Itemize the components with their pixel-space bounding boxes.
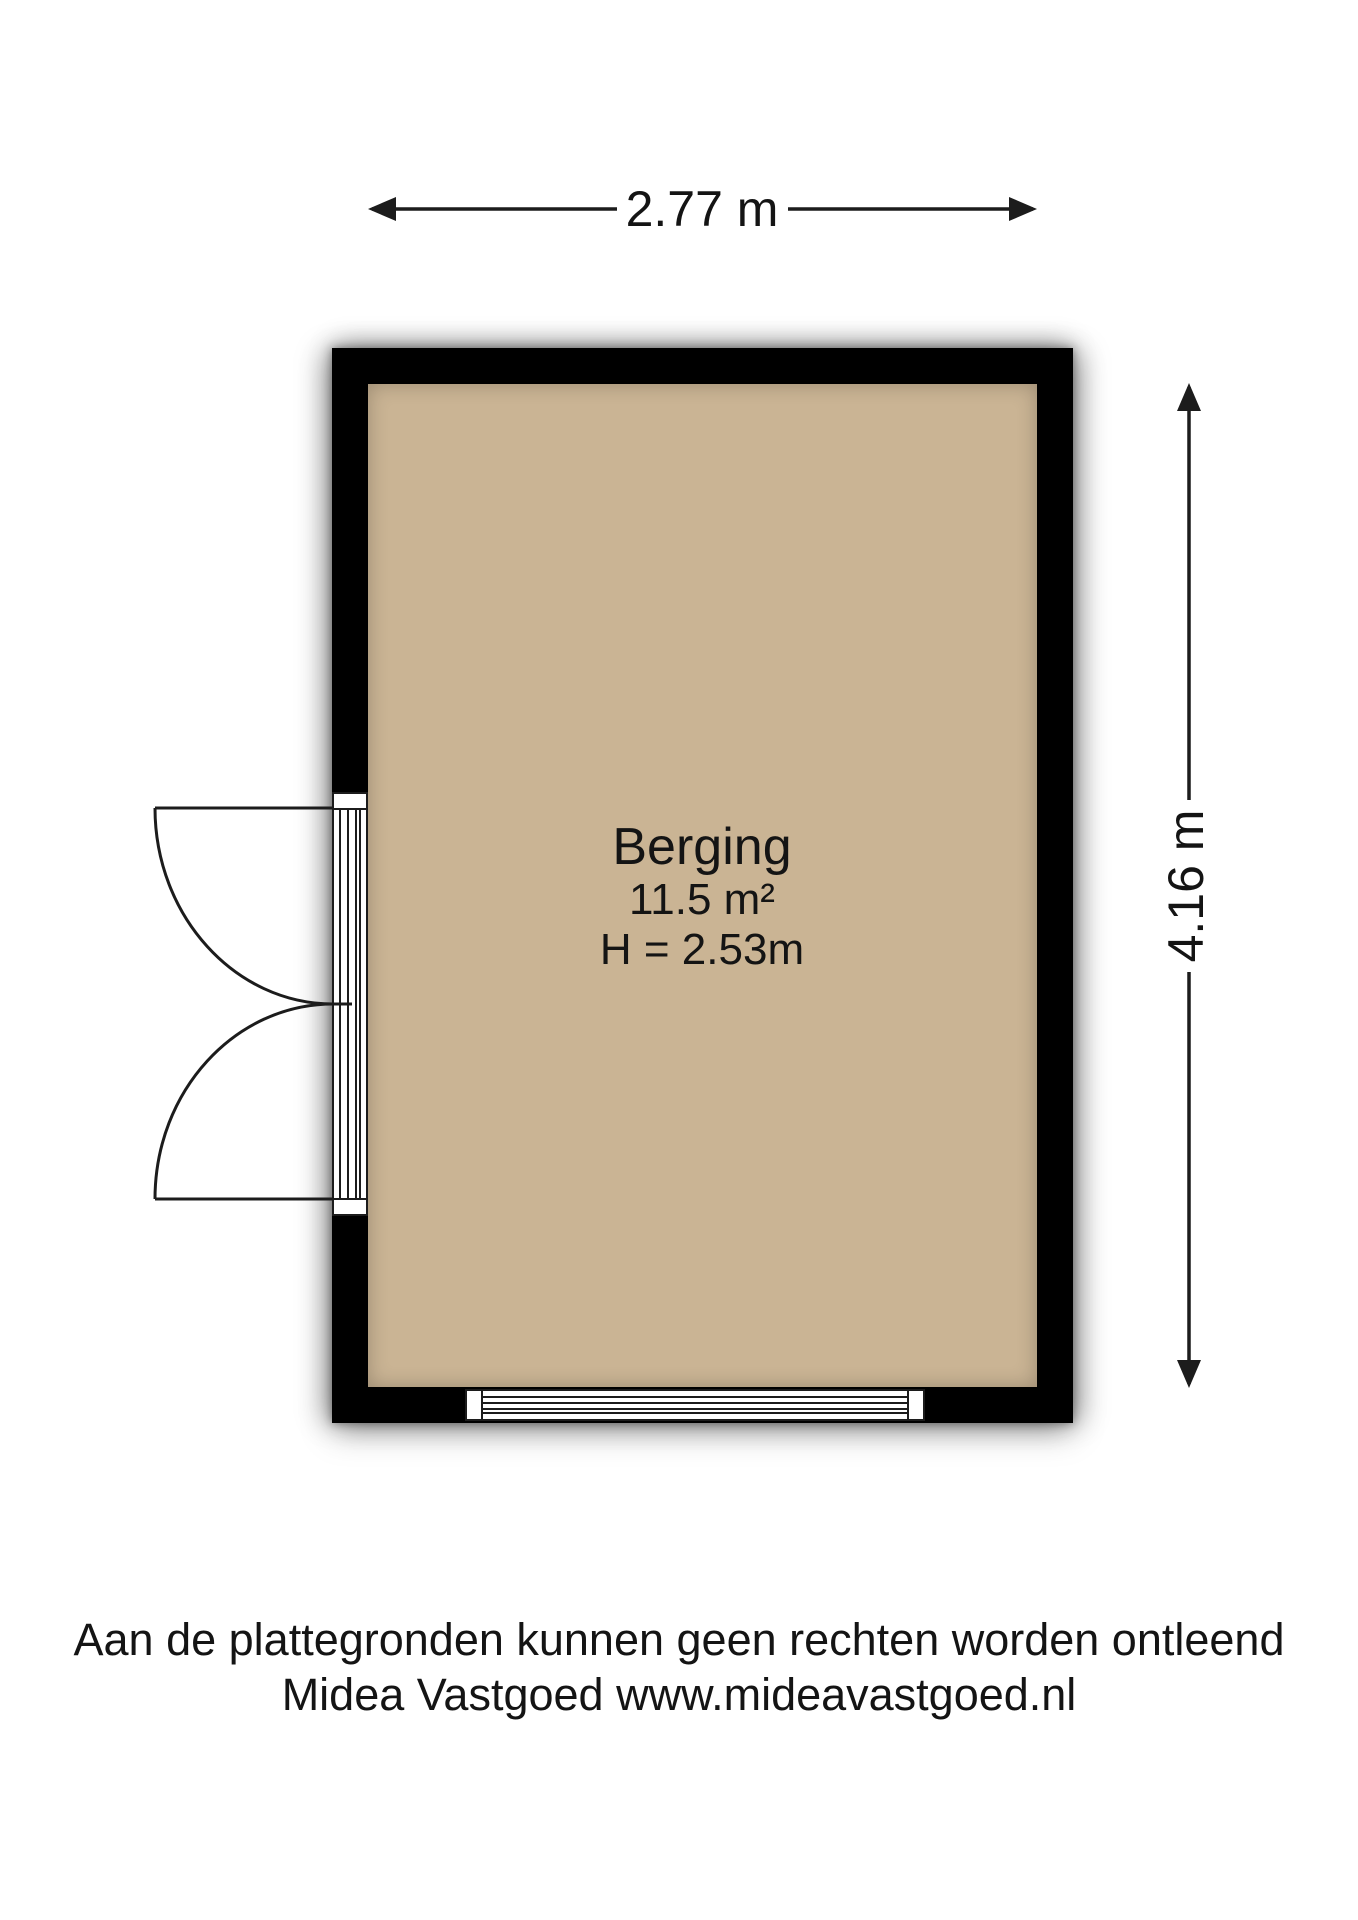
door-post-top (334, 794, 366, 810)
window-post-right (907, 1391, 923, 1419)
window-pane-line (483, 1402, 907, 1404)
floorplan-canvas: 2.77 m 4.16 m Berging 11.5 m² H = 2.53m … (0, 0, 1358, 1920)
window (465, 1389, 925, 1421)
arrow-left-icon (368, 197, 396, 221)
room-ceiling-height: H = 2.53m (600, 925, 804, 975)
room-area: 11.5 m² (600, 875, 804, 925)
door-pane-line (347, 810, 349, 1198)
width-dimension-label: 2.77 m (626, 180, 779, 238)
window-post-left (467, 1391, 483, 1419)
room-label: Berging 11.5 m² H = 2.53m (600, 819, 804, 975)
arrow-right-icon (1009, 197, 1037, 221)
door-swing-icon (155, 808, 352, 1199)
footer-company: Midea Vastgoed www.mideavastgoed.nl (0, 1667, 1358, 1722)
window-pane-line (483, 1408, 907, 1410)
room-name: Berging (600, 819, 804, 875)
double-door-frame (332, 792, 368, 1216)
footer-disclaimer: Aan de plattegronden kunnen geen rechten… (0, 1612, 1358, 1667)
window-glass (483, 1396, 907, 1414)
arrow-up-icon (1177, 383, 1201, 411)
door-pane-line (355, 810, 357, 1198)
door-glass (339, 810, 361, 1198)
height-dimension-label: 4.16 m (1157, 810, 1215, 963)
door-post-bottom (334, 1198, 366, 1214)
footer: Aan de plattegronden kunnen geen rechten… (0, 1612, 1358, 1722)
arrow-down-icon (1177, 1360, 1201, 1388)
